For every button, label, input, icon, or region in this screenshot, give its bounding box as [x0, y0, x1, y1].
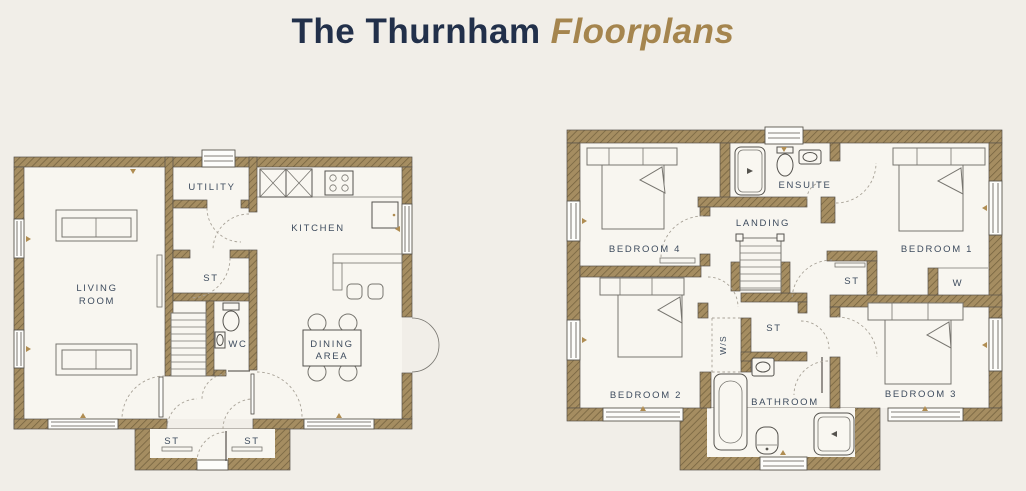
window [304, 419, 374, 429]
room-label-bedroom3: BEDROOM 3 [885, 389, 957, 400]
floorplans-drawing: LIVING ROOM UTILITY KITCHEN ST WC DINING… [0, 0, 1026, 491]
window [14, 219, 24, 258]
room-label-dining: AREA [316, 351, 349, 362]
window [48, 419, 118, 429]
window [402, 204, 412, 254]
staircase [171, 313, 206, 376]
room-label-bedroom4: BEDROOM 4 [609, 244, 681, 255]
room-label-kitchen: KITCHEN [291, 223, 345, 234]
first-floor-plan: BEDROOM 4 ENSUITE LANDING BEDROOM 1 ST W… [567, 127, 1002, 470]
room-label-living: LIVING [76, 283, 117, 294]
room-label-utility: UTILITY [188, 182, 235, 193]
room-label-store: ST [203, 273, 219, 284]
staircase [736, 234, 784, 290]
bath [714, 374, 747, 450]
room-label-ensuite: ENSUITE [778, 180, 831, 191]
chair [308, 314, 326, 332]
basin [752, 358, 774, 376]
room-label-landing: LANDING [736, 218, 790, 229]
room-label-wardrobe-space: W/S [718, 335, 728, 355]
stool [347, 284, 362, 299]
toilet [756, 427, 778, 454]
window [989, 318, 1002, 371]
sofa [56, 210, 137, 241]
room-label-bathroom: BATHROOM [751, 397, 819, 408]
stool [368, 284, 383, 299]
room-label-store: ST [164, 436, 180, 447]
fridge [372, 202, 398, 228]
floorplan-page: The ThurnhamFloorplans [0, 0, 1026, 491]
room-label-bedroom2: BEDROOM 2 [610, 390, 682, 401]
room-label-living: ROOM [79, 296, 115, 307]
hob [325, 171, 353, 195]
toilet [777, 147, 793, 176]
french-door-leaf [412, 318, 439, 345]
room-label-wardrobe: W [953, 278, 964, 289]
ground-floor-plan: LIVING ROOM UTILITY KITCHEN ST WC DINING… [14, 150, 439, 470]
basin [799, 150, 821, 164]
room-label-bedroom1: BEDROOM 1 [901, 244, 973, 255]
basin [215, 332, 225, 348]
chair [339, 314, 357, 332]
window [567, 320, 580, 360]
window [765, 127, 803, 144]
newel-post [736, 234, 743, 241]
shower [814, 413, 854, 455]
room-label-store: ST [244, 436, 260, 447]
window [760, 457, 807, 470]
window [567, 201, 580, 241]
newel-post [777, 234, 784, 241]
window [14, 330, 24, 368]
living-room-door-leaf [159, 377, 163, 417]
window [202, 150, 235, 167]
room-label-dining: DINING [310, 339, 353, 350]
dining-door-leaf [251, 374, 254, 414]
sofa [56, 344, 137, 375]
french-door-leaf [412, 345, 439, 372]
room-label-store: ST [766, 323, 782, 334]
room-label-store: ST [844, 276, 860, 287]
window [989, 181, 1002, 235]
toilet [223, 303, 239, 331]
room-label-wc: WC [228, 339, 247, 350]
shower [735, 147, 765, 195]
